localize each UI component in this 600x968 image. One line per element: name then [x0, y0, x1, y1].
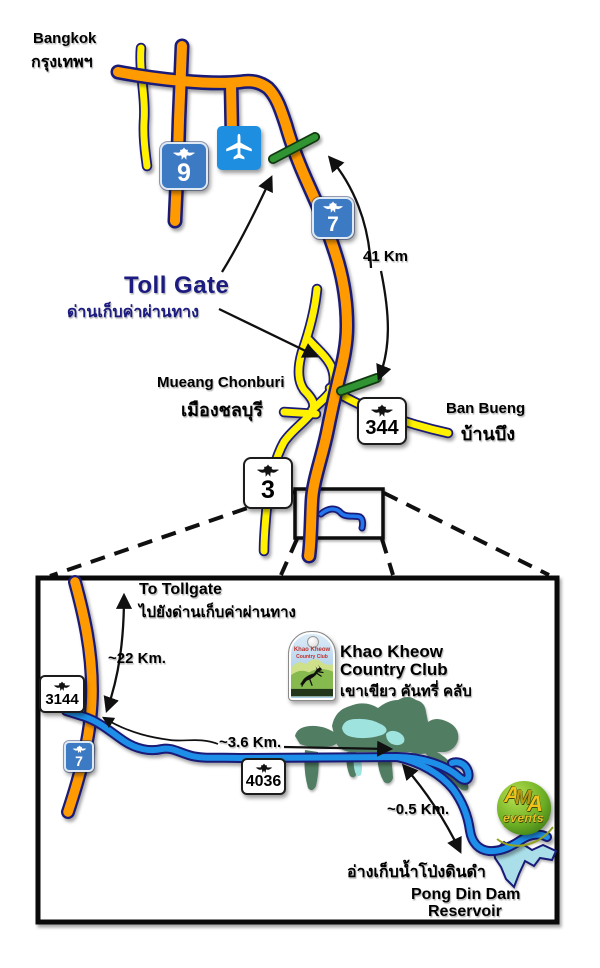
toll-gate-label: Toll Gate	[124, 272, 229, 300]
route-3-shield: 3	[243, 457, 293, 509]
reservoir-label-2: Reservoir	[428, 903, 502, 921]
club-name-label-2: Country Club	[340, 660, 448, 680]
mueang-chonburi-label-thai: เมืองชลบุรี	[181, 395, 263, 424]
route-map: Bangkok กรุงเทพฯ Toll Gate ด่านเก็บค่าผ่…	[0, 0, 600, 968]
club-logo-text-1: Khao Kheow	[291, 647, 333, 653]
route-9-shield: 9	[160, 142, 208, 190]
garuda-icon	[370, 404, 394, 418]
reservoir-label-1: Pong Din Dam	[411, 886, 520, 904]
route-344-shield: 344	[357, 397, 407, 445]
distance-22km-label: ~22 Km.	[108, 650, 166, 667]
airport-icon	[217, 126, 261, 170]
river-line	[321, 509, 363, 528]
route-7-shield: 7	[312, 197, 354, 239]
route-7-inset-shield: 7	[64, 741, 94, 772]
ama-events-logo: A M A events	[497, 781, 551, 835]
route-3144-shield: 3144	[39, 675, 85, 713]
distance-0-5km-label: ~0.5 Km.	[387, 801, 449, 818]
bangkok-label-thai: กรุงเทพฯ	[31, 50, 93, 75]
ban-bueng-label-thai: บ้านบึง	[461, 419, 515, 448]
airplane-icon	[222, 131, 256, 165]
khao-kheow-club-logo: Khao Kheow Country Club	[289, 632, 335, 700]
distance-41-arrow-down	[379, 271, 388, 378]
club-name-label-thai: เขาเขียว คันทรี่ คลับ	[340, 679, 472, 703]
club-logo-art	[291, 657, 333, 698]
reservoir-label-thai: อ่างเก็บน้ำโป่งดินดำ	[347, 860, 486, 885]
mueang-chonburi-label: Mueang Chonburi	[157, 374, 285, 391]
route-4036-shield: 4036	[241, 758, 286, 795]
tollgate-arrow-south	[219, 309, 316, 356]
club-name-label-1: Khao Kheow	[340, 642, 443, 662]
tollgate-arrow-north	[222, 178, 271, 272]
distance-41km-label: 41 Km	[363, 248, 408, 265]
zoom-projection-lines	[50, 492, 549, 576]
ban-bueng-label: Ban Bueng	[446, 400, 525, 417]
to-tollgate-label-thai: ไปยังด่านเก็บค่าผ่านทาง	[139, 600, 296, 624]
to-tollgate-label: To Tollgate	[139, 581, 222, 599]
toll-gate-label-thai: ด่านเก็บค่าผ่านทาง	[67, 300, 199, 325]
distance-3-6km-label: ~3.6 Km.	[219, 734, 281, 751]
bangkok-label: Bangkok	[33, 30, 96, 47]
ama-events-text: events	[503, 811, 544, 825]
